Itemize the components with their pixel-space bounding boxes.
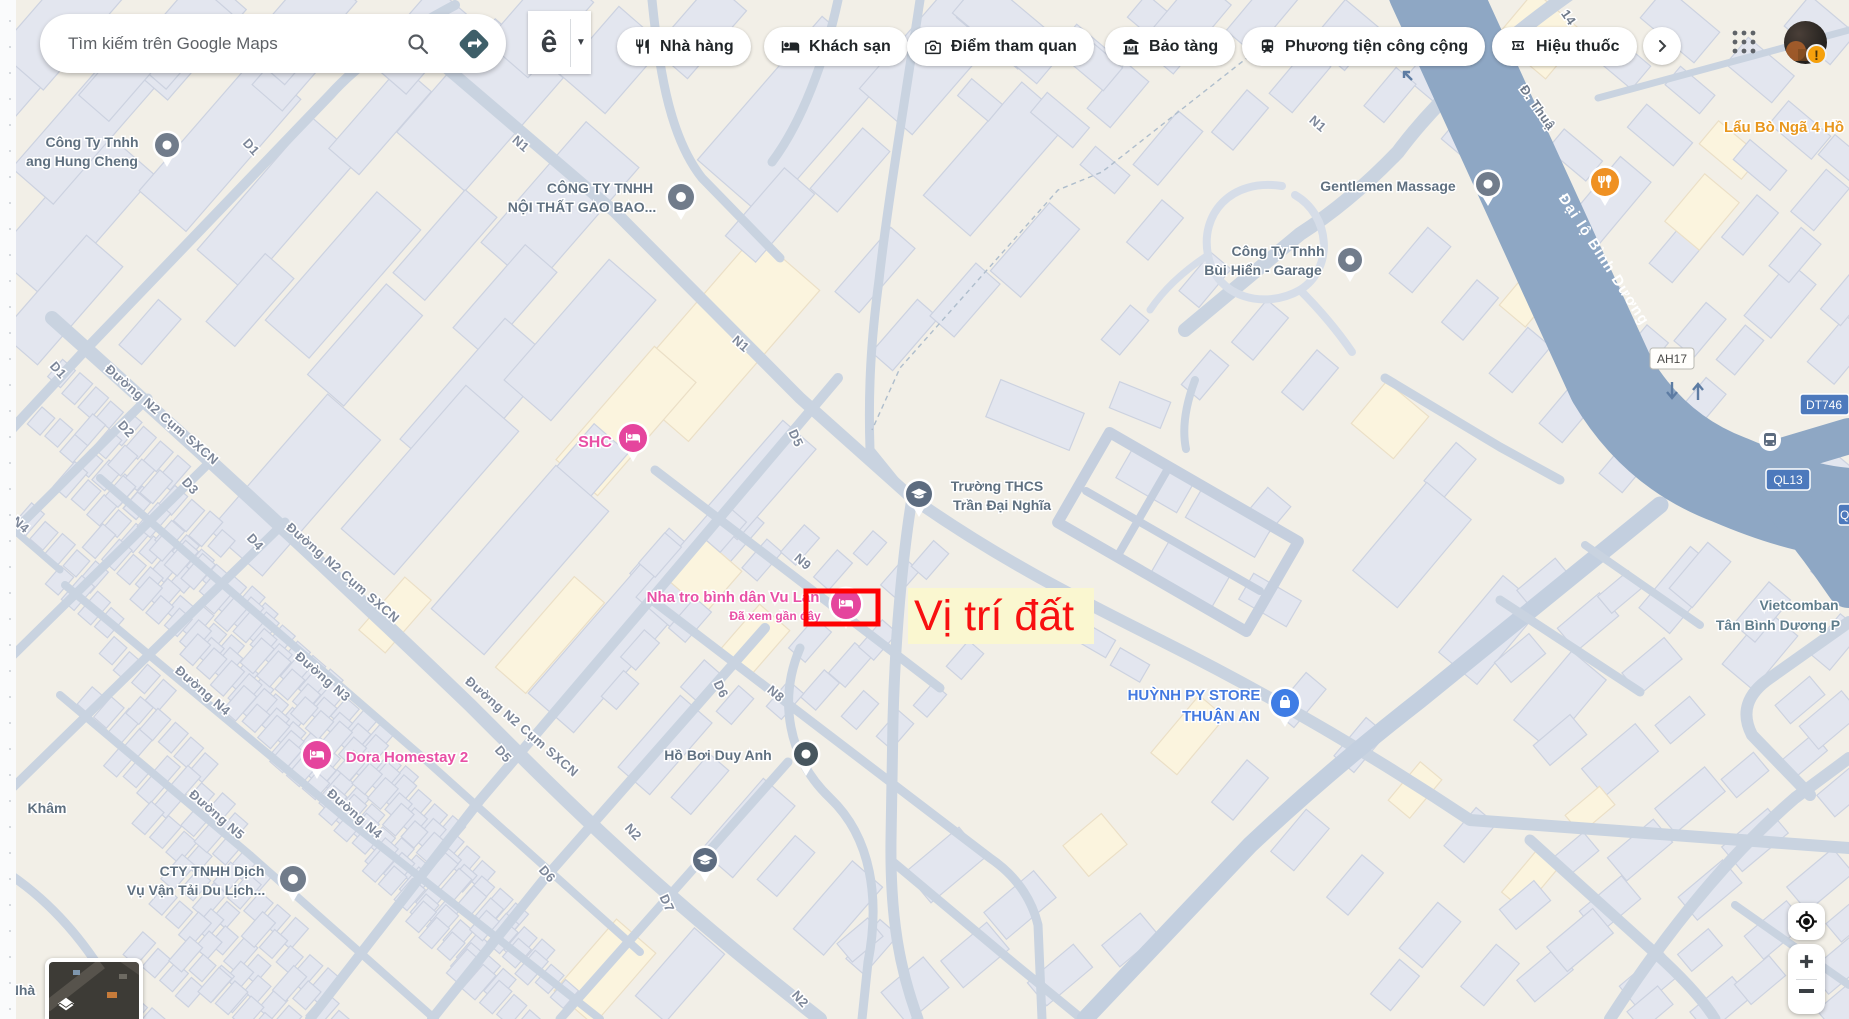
svg-text:CTY TNHH Dịch: CTY TNHH Dịch bbox=[160, 863, 265, 879]
svg-text:Khâm: Khâm bbox=[28, 800, 67, 816]
svg-text:Trần Đại Nghĩa: Trần Đại Nghĩa bbox=[953, 497, 1051, 513]
svg-text:HUỲNH PY STORE: HUỲNH PY STORE bbox=[1128, 686, 1261, 704]
svg-text:SHC: SHC bbox=[578, 434, 612, 451]
svg-text:CÔNG TY TNHH: CÔNG TY TNHH bbox=[547, 179, 653, 196]
svg-text:AH17: AH17 bbox=[1657, 352, 1687, 366]
svg-text:Dora Homestay 2: Dora Homestay 2 bbox=[346, 749, 469, 766]
svg-text:Công Ty Tnhh: Công Ty Tnhh bbox=[45, 134, 138, 150]
svg-text:Vụ Vận Tải Du Lịch...: Vụ Vận Tải Du Lịch... bbox=[127, 882, 265, 898]
svg-text:DT746: DT746 bbox=[1806, 398, 1842, 412]
svg-text:M: M bbox=[1128, 45, 1134, 52]
svg-text:ang Hung Cheng: ang Hung Cheng bbox=[26, 153, 138, 169]
svg-text:QL: QL bbox=[1840, 508, 1849, 522]
svg-text:Trường THCS: Trường THCS bbox=[951, 478, 1043, 494]
svg-text:Gentlemen Massage: Gentlemen Massage bbox=[1320, 178, 1456, 194]
svg-text:THUẬN AN: THUẬN AN bbox=[1182, 707, 1260, 725]
svg-text:Vietcomban: Vietcomban bbox=[1759, 597, 1838, 613]
svg-text:Bùi Hiển - Garage: Bùi Hiển - Garage bbox=[1204, 262, 1322, 278]
svg-text:Tân Bình Dương P: Tân Bình Dương P bbox=[1716, 617, 1840, 633]
svg-text:Công Ty Tnhh: Công Ty Tnhh bbox=[1231, 243, 1324, 259]
svg-text:Nha tro bình dân Vu Lan: Nha tro bình dân Vu Lan bbox=[647, 589, 820, 606]
svg-text:NỘI THẤT GAO BAO...: NỘI THẤT GAO BAO... bbox=[508, 198, 657, 215]
svg-text:Hồ Bơi Duy Anh: Hồ Bơi Duy Anh bbox=[664, 747, 771, 763]
svg-text:Lẩu Bò Ngã 4 Hồ: Lẩu Bò Ngã 4 Hồ bbox=[1724, 119, 1844, 136]
svg-text:Vị trí đất: Vị trí đất bbox=[914, 592, 1074, 640]
svg-text:QL13: QL13 bbox=[1773, 473, 1803, 487]
